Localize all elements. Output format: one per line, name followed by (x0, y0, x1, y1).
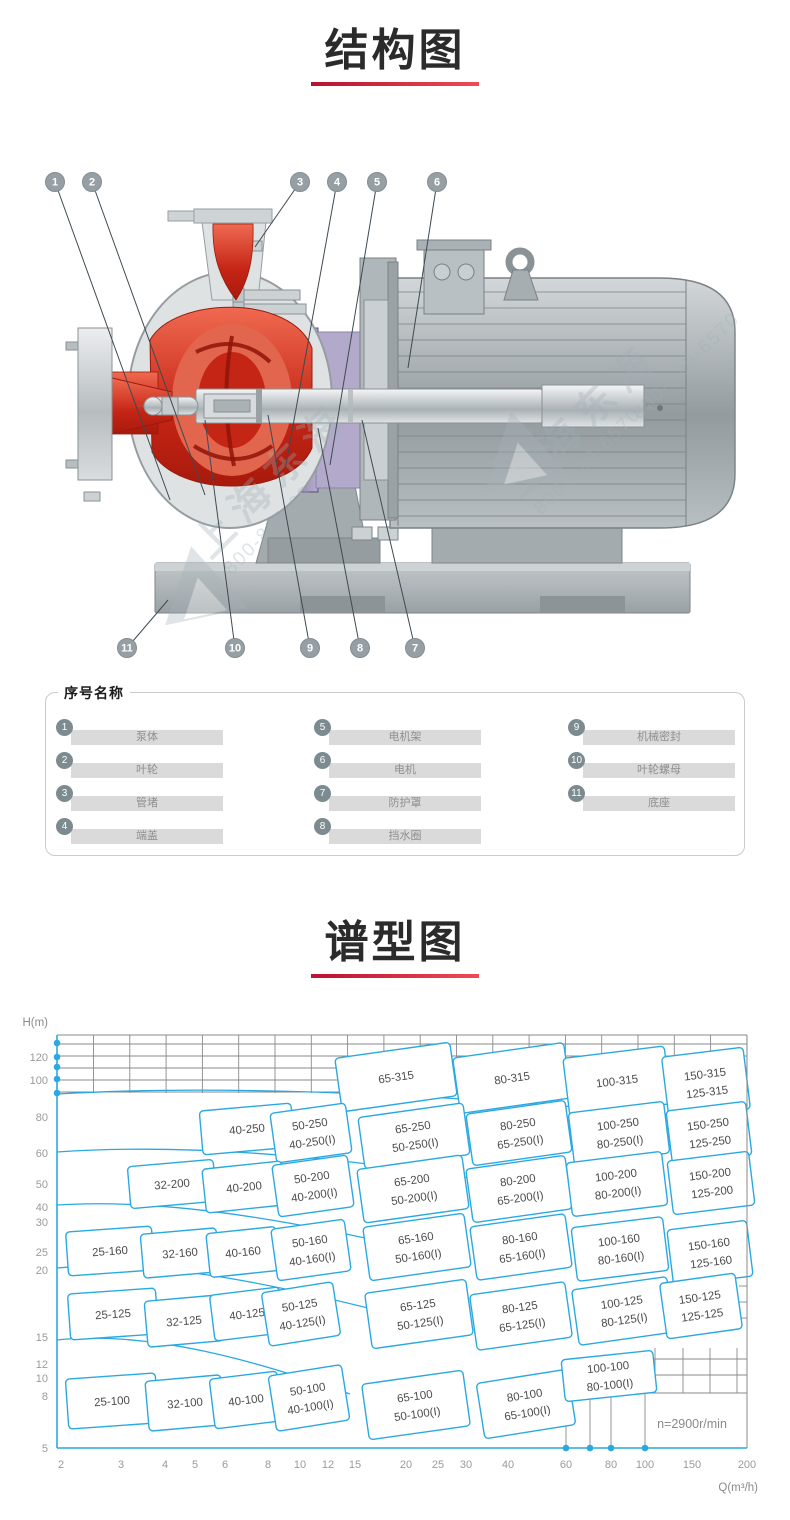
x-tick-25: 25 (432, 1459, 444, 1471)
legend-item-4: 4端盖 (56, 818, 231, 835)
y-tick-60: 60 (36, 1148, 48, 1160)
legend-part-name: 电机 (329, 763, 481, 778)
legend-part-name: 电机架 (329, 730, 481, 745)
x-tick-2: 2 (58, 1459, 64, 1471)
x-tick-5: 5 (192, 1459, 198, 1471)
model-tile-50-250: 50-25040-250(I) (270, 1103, 352, 1163)
x-tick-8: 8 (265, 1459, 271, 1471)
callout-11: 11 (118, 600, 169, 658)
legend-item-7: 7防护罩 (314, 785, 489, 802)
y-tick-5: 5 (42, 1443, 48, 1455)
y-axis-dot (54, 1040, 61, 1047)
x-tick-40: 40 (502, 1459, 514, 1471)
motor-lifting-eye (504, 251, 538, 300)
x-tick-4: 4 (162, 1459, 168, 1471)
legend-part-name: 泵体 (71, 730, 223, 745)
callout-number: 7 (412, 643, 418, 655)
legend-column: 5电机架6电机7防护罩8挡水圈 (314, 693, 489, 851)
legend-item-6: 6电机 (314, 752, 489, 769)
legend-number: 7 (314, 785, 331, 802)
model-tile-65-160: 65-16050-160(I) (363, 1213, 472, 1281)
model-tile-65-100: 65-10050-100(I) (362, 1370, 471, 1440)
legend-part-name: 底座 (583, 796, 735, 811)
pump-cross-section-diagram: 上海东海 800-820-6570 上海东海 800-820-6570 800-… (0, 150, 790, 680)
model-tile-150-125: 150-125125-125 (659, 1273, 742, 1339)
x-tick-15: 15 (349, 1459, 361, 1471)
legend-column: 1泵体2叶轮3管堵4端盖 (56, 693, 231, 851)
legend-number: 3 (56, 785, 73, 802)
y-tick-30: 30 (36, 1217, 48, 1229)
y-axis-dot (54, 1090, 61, 1097)
legend-part-name: 叶轮螺母 (583, 763, 735, 778)
legend-number: 2 (56, 752, 73, 769)
model-tile-100-125: 100-12580-125(I) (572, 1277, 675, 1346)
structure-diagram-title: 结构图 (0, 14, 790, 78)
x-tick-12: 12 (322, 1459, 334, 1471)
parts-legend: 序号名称 1泵体2叶轮3管堵4端盖5电机架6电机7防护罩8挡水圈9机械密封10叶… (45, 692, 745, 856)
y-axis-title: H(m) (22, 1017, 48, 1029)
model-tile-80-100: 80-10065-100(I) (476, 1369, 576, 1439)
y-tick-12: 12 (36, 1359, 48, 1371)
callout-number: 11 (121, 643, 133, 655)
y-tick-25: 25 (36, 1247, 48, 1259)
callout-number: 6 (434, 177, 440, 189)
y-tick-50: 50 (36, 1179, 48, 1191)
model-tile-80-160: 80-16065-160(I) (470, 1214, 573, 1281)
model-tile-65-315: 65-315 (335, 1042, 457, 1112)
y-tick-20: 20 (36, 1265, 48, 1277)
legend-part-name: 叶轮 (71, 763, 223, 778)
x-tick-10: 10 (294, 1459, 306, 1471)
legend-part-name: 端盖 (71, 829, 223, 844)
x-tick-60: 60 (560, 1459, 572, 1471)
legend-number: 5 (314, 719, 331, 736)
pump-selection-chart: 65-31580-315100-315150-315125-31540-2505… (0, 1005, 790, 1520)
legend-number: 4 (56, 818, 73, 835)
x-tick-200: 200 (738, 1459, 756, 1471)
model-tile-100-100: 100-10080-100(I) (561, 1350, 657, 1401)
model-tile-25-100: 25-100 (65, 1373, 158, 1429)
legend-part-name: 防护罩 (329, 796, 481, 811)
y-tick-100: 100 (30, 1075, 48, 1087)
callout-number: 5 (374, 177, 380, 189)
page: 结构图 (0, 0, 790, 1520)
legend-item-8: 8挡水圈 (314, 818, 489, 835)
model-tile-50-160: 50-16040-160(I) (271, 1219, 352, 1281)
callout-number: 1 (52, 177, 58, 189)
model-tile-80-125: 80-12565-125(I) (470, 1282, 573, 1351)
model-region-tiles: 65-31580-315100-315150-315125-31540-2505… (65, 1042, 755, 1440)
model-tile-50-100: 50-10040-100(I) (268, 1365, 350, 1432)
legend-part-name: 管堵 (71, 796, 223, 811)
type-spectrum-title: 谱型图 (0, 906, 790, 970)
callout-number: 8 (357, 643, 363, 655)
structure-title-underline (311, 82, 479, 86)
motor-terminal-box (417, 240, 491, 314)
legend-part-name: 挡水圈 (329, 829, 481, 844)
x-tick-20: 20 (400, 1459, 412, 1471)
x-tick-3: 3 (118, 1459, 124, 1471)
y-tick-40: 40 (36, 1202, 48, 1214)
model-tile-40-160: 40-160 (206, 1226, 280, 1277)
model-tile-80-200: 80-20065-200(I) (466, 1155, 573, 1222)
legend-item-5: 5电机架 (314, 719, 489, 736)
legend-number: 9 (568, 719, 585, 736)
x-axis-dot (587, 1445, 594, 1452)
model-tile-50-200: 50-20040-200(I) (272, 1155, 354, 1217)
y-axis-dot (54, 1054, 61, 1061)
legend-number: 11 (568, 785, 585, 802)
callout-number: 9 (307, 643, 313, 655)
x-tick-80: 80 (605, 1459, 617, 1471)
x-tick-100: 100 (636, 1459, 654, 1471)
y-tick-10: 10 (36, 1373, 48, 1385)
y-tick-8: 8 (42, 1391, 48, 1403)
y-axis-dot (54, 1076, 61, 1083)
model-label: 25-160 (92, 1245, 129, 1259)
legend-item-11: 11底座 (568, 785, 743, 802)
model-label: 25-100 (94, 1395, 131, 1409)
legend-number: 10 (568, 752, 585, 769)
x-axis-title: Q(m³/h) (718, 1482, 758, 1494)
x-tick-30: 30 (460, 1459, 472, 1471)
x-tick-6: 6 (222, 1459, 228, 1471)
legend-item-3: 3管堵 (56, 785, 231, 802)
speed-note: n=2900r/min (657, 1417, 727, 1431)
legend-number: 6 (314, 752, 331, 769)
model-tile-150-200: 150-200125-200 (667, 1151, 755, 1215)
discharge-flange (194, 209, 272, 223)
callout-number: 2 (89, 177, 95, 189)
callout-number: 4 (334, 177, 341, 189)
legend-item-1: 1泵体 (56, 719, 231, 736)
y-tick-120: 120 (30, 1052, 48, 1064)
legend-number: 1 (56, 719, 73, 736)
y-axis-dot (54, 1064, 61, 1071)
x-axis-dot (642, 1445, 649, 1452)
x-axis-dot (608, 1445, 615, 1452)
model-tile-100-160: 100-16080-160(I) (571, 1217, 669, 1282)
legend-part-name: 机械密封 (583, 730, 735, 745)
legend-column: 9机械密封10叶轮螺母11底座 (568, 693, 743, 818)
spectrum-title-underline (311, 974, 479, 978)
model-tile-100-200: 100-20080-200(I) (566, 1151, 668, 1216)
callout-number: 10 (229, 643, 241, 655)
model-label: 25-125 (95, 1308, 132, 1322)
legend-item-2: 2叶轮 (56, 752, 231, 769)
legend-item-9: 9机械密封 (568, 719, 743, 736)
x-tick-150: 150 (683, 1459, 701, 1471)
y-tick-80: 80 (36, 1112, 48, 1124)
legend-number: 8 (314, 818, 331, 835)
suction-flange (66, 328, 112, 480)
callout-number: 3 (297, 177, 303, 189)
model-tile-50-125: 50-12540-125(I) (261, 1282, 341, 1347)
model-tile-65-125: 65-12550-125(I) (365, 1279, 474, 1349)
x-axis-dot (563, 1445, 570, 1452)
y-tick-15: 15 (36, 1332, 48, 1344)
legend-item-10: 10叶轮螺母 (568, 752, 743, 769)
